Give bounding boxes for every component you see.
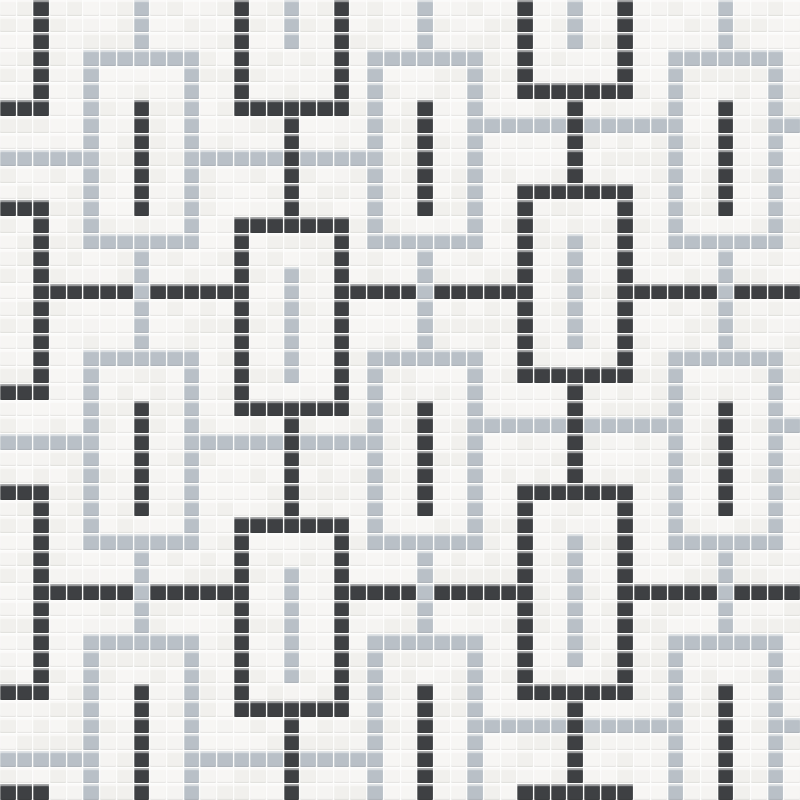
mosaic-tile	[0, 284, 16, 300]
mosaic-tile	[167, 534, 183, 550]
mosaic-tile	[684, 184, 700, 200]
mosaic-tile	[417, 184, 433, 200]
mosaic-tile	[467, 434, 483, 450]
mosaic-tile	[467, 334, 483, 350]
mosaic-tile	[451, 67, 467, 83]
mosaic-tile	[551, 567, 567, 583]
mosaic-tile	[367, 83, 383, 99]
mosaic-tile	[451, 267, 467, 283]
mosaic-tile	[567, 134, 583, 150]
mosaic-tile	[617, 617, 633, 633]
mosaic-tile	[634, 50, 650, 66]
mosaic-tile	[701, 83, 717, 99]
mosaic-tile	[718, 334, 734, 350]
mosaic-tile	[668, 284, 684, 300]
mosaic-tile	[417, 601, 433, 617]
mosaic-tile	[551, 768, 567, 784]
mosaic-tile	[17, 200, 33, 216]
mosaic-tile	[434, 517, 450, 533]
mosaic-tile	[234, 534, 250, 550]
mosaic-tile	[484, 17, 500, 33]
mosaic-tile	[167, 517, 183, 533]
mosaic-tile	[551, 367, 567, 383]
mosaic-tile	[617, 434, 633, 450]
mosaic-tile	[484, 517, 500, 533]
mosaic-tile	[718, 284, 734, 300]
mosaic-tile	[417, 617, 433, 633]
mosaic-tile	[50, 567, 66, 583]
mosaic-tile	[267, 234, 283, 250]
mosaic-tile	[734, 83, 750, 99]
mosaic-tile	[534, 734, 550, 750]
mosaic-tile	[284, 501, 300, 517]
mosaic-tile	[83, 751, 99, 767]
mosaic-tile	[434, 367, 450, 383]
mosaic-tile	[67, 50, 83, 66]
mosaic-tile	[300, 184, 316, 200]
mosaic-tile	[284, 317, 300, 333]
mosaic-tile	[217, 334, 233, 350]
mosaic-tile	[334, 551, 350, 567]
mosaic-tile	[751, 67, 767, 83]
mosaic-tile	[768, 367, 784, 383]
mosaic-tile	[150, 601, 166, 617]
mosaic-tile	[234, 234, 250, 250]
mosaic-tile	[150, 551, 166, 567]
mosaic-tile	[367, 33, 383, 49]
mosaic-tile	[784, 634, 800, 650]
mosaic-tile	[768, 634, 784, 650]
mosaic-tile	[751, 434, 767, 450]
mosaic-tile	[150, 617, 166, 633]
mosaic-tile	[451, 300, 467, 316]
mosaic-tile	[768, 117, 784, 133]
mosaic-tile	[17, 517, 33, 533]
mosaic-tile	[33, 534, 49, 550]
mosaic-tile	[484, 534, 500, 550]
mosaic-tile	[33, 451, 49, 467]
mosaic-tile	[617, 284, 633, 300]
mosaic-tile	[117, 300, 133, 316]
mosaic-tile	[401, 0, 417, 16]
mosaic-tile	[150, 367, 166, 383]
mosaic-tile	[250, 534, 266, 550]
mosaic-tile	[684, 601, 700, 617]
mosaic-tile	[484, 467, 500, 483]
mosaic-tile	[117, 167, 133, 183]
mosaic-tile	[50, 200, 66, 216]
mosaic-tile	[0, 768, 16, 784]
mosaic-tile	[551, 250, 567, 266]
mosaic-tile	[150, 718, 166, 734]
mosaic-tile	[634, 401, 650, 417]
mosaic-tile	[384, 83, 400, 99]
mosaic-tile	[784, 134, 800, 150]
mosaic-tile	[701, 367, 717, 383]
mosaic-tile	[601, 434, 617, 450]
mosaic-tile	[234, 634, 250, 650]
mosaic-tile	[284, 250, 300, 266]
mosaic-tile	[217, 434, 233, 450]
mosaic-tile	[217, 734, 233, 750]
mosaic-tile	[467, 484, 483, 500]
mosaic-tile	[300, 334, 316, 350]
mosaic-tile	[0, 684, 16, 700]
mosaic-tile	[634, 167, 650, 183]
mosaic-tile	[434, 501, 450, 517]
mosaic-tile	[784, 384, 800, 400]
mosaic-tile	[567, 651, 583, 667]
mosaic-tile	[50, 300, 66, 316]
mosaic-tile	[267, 634, 283, 650]
mosaic-tile	[50, 651, 66, 667]
mosaic-tile	[334, 434, 350, 450]
mosaic-tile	[567, 33, 583, 49]
mosaic-tile	[67, 184, 83, 200]
mosaic-tile	[668, 117, 684, 133]
mosaic-tile	[134, 718, 150, 734]
mosaic-tile	[300, 484, 316, 500]
mosaic-tile	[200, 718, 216, 734]
mosaic-tile	[367, 701, 383, 717]
mosaic-tile	[184, 517, 200, 533]
mosaic-tile	[701, 234, 717, 250]
mosaic-tile	[200, 417, 216, 433]
mosaic-tile	[417, 250, 433, 266]
mosaic-tile	[150, 67, 166, 83]
mosaic-tile	[50, 0, 66, 16]
mosaic-tile	[584, 200, 600, 216]
mosaic-tile	[100, 501, 116, 517]
mosaic-tile	[701, 534, 717, 550]
mosaic-tile	[67, 83, 83, 99]
mosaic-tile	[617, 651, 633, 667]
mosaic-tile	[50, 751, 66, 767]
mosaic-tile	[33, 117, 49, 133]
mosaic-tile	[701, 467, 717, 483]
mosaic-tile	[250, 134, 266, 150]
mosaic-tile	[284, 150, 300, 166]
mosaic-tile	[184, 200, 200, 216]
mosaic-tile	[234, 501, 250, 517]
mosaic-tile	[217, 217, 233, 233]
mosaic-tile	[751, 684, 767, 700]
mosaic-tile	[33, 784, 49, 800]
mosaic-tile	[150, 284, 166, 300]
mosaic-tile	[684, 317, 700, 333]
mosaic-tile	[401, 401, 417, 417]
mosaic-tile	[100, 451, 116, 467]
mosaic-tile	[250, 234, 266, 250]
mosaic-tile	[634, 434, 650, 450]
mosaic-tile	[434, 484, 450, 500]
mosaic-tile	[50, 83, 66, 99]
mosaic-tile	[651, 250, 667, 266]
mosaic-tile	[734, 567, 750, 583]
mosaic-tile	[33, 584, 49, 600]
mosaic-tile	[784, 617, 800, 633]
mosaic-tile	[284, 467, 300, 483]
mosaic-tile	[0, 784, 16, 800]
mosaic-tile	[134, 384, 150, 400]
mosaic-tile	[350, 50, 366, 66]
mosaic-tile	[100, 367, 116, 383]
mosaic-tile	[134, 701, 150, 717]
mosaic-tile	[467, 200, 483, 216]
mosaic-tile	[234, 751, 250, 767]
mosaic-tile	[334, 300, 350, 316]
mosaic-tile	[501, 267, 517, 283]
mosaic-tile	[434, 83, 450, 99]
mosaic-tile	[267, 50, 283, 66]
mosaic-tile	[83, 50, 99, 66]
mosaic-tile	[784, 601, 800, 617]
mosaic-tile	[451, 350, 467, 366]
mosaic-tile	[33, 601, 49, 617]
mosaic-tile	[634, 200, 650, 216]
mosaic-tile	[334, 184, 350, 200]
mosaic-tile	[434, 217, 450, 233]
mosaic-tile	[50, 67, 66, 83]
mosaic-tile	[684, 551, 700, 567]
mosaic-tile	[668, 334, 684, 350]
mosaic-tile	[584, 284, 600, 300]
mosaic-tile	[117, 484, 133, 500]
mosaic-tile	[367, 217, 383, 233]
mosaic-tile	[718, 651, 734, 667]
mosaic-tile	[617, 501, 633, 517]
mosaic-tile	[517, 734, 533, 750]
mosaic-tile	[784, 551, 800, 567]
mosaic-tile	[234, 768, 250, 784]
mosaic-tile	[300, 83, 316, 99]
mosaic-tile	[768, 484, 784, 500]
mosaic-tile	[768, 334, 784, 350]
mosaic-tile	[284, 200, 300, 216]
mosaic-tile	[584, 751, 600, 767]
mosaic-tile	[350, 200, 366, 216]
mosaic-tile	[350, 401, 366, 417]
mosaic-tile	[117, 0, 133, 16]
mosaic-tile	[751, 634, 767, 650]
mosaic-tile	[601, 284, 617, 300]
mosaic-tile	[250, 684, 266, 700]
mosaic-tile	[33, 267, 49, 283]
mosaic-tile	[517, 67, 533, 83]
mosaic-tile	[284, 67, 300, 83]
mosaic-tile	[200, 67, 216, 83]
mosaic-tile	[200, 217, 216, 233]
mosaic-tile	[200, 134, 216, 150]
mosaic-tile	[367, 417, 383, 433]
mosaic-tile	[184, 601, 200, 617]
mosaic-tile	[601, 317, 617, 333]
mosaic-tile	[334, 83, 350, 99]
mosaic-tile	[83, 334, 99, 350]
mosaic-tile	[150, 384, 166, 400]
mosaic-tile	[768, 768, 784, 784]
mosaic-tile	[250, 67, 266, 83]
mosaic-tile	[250, 83, 266, 99]
mosaic-tile	[100, 100, 116, 116]
mosaic-tile	[634, 584, 650, 600]
mosaic-tile	[267, 684, 283, 700]
mosaic-tile	[167, 601, 183, 617]
mosaic-tile	[534, 567, 550, 583]
mosaic-tile	[100, 668, 116, 684]
mosaic-tile	[634, 751, 650, 767]
mosaic-tile	[250, 317, 266, 333]
mosaic-tile	[134, 150, 150, 166]
mosaic-tile	[668, 384, 684, 400]
mosaic-tile	[50, 701, 66, 717]
mosaic-tile	[334, 567, 350, 583]
mosaic-tile	[434, 350, 450, 366]
mosaic-tile	[534, 467, 550, 483]
mosaic-tile	[701, 317, 717, 333]
mosaic-tile	[67, 317, 83, 333]
mosaic-tile	[117, 134, 133, 150]
mosaic-tile	[83, 617, 99, 633]
mosaic-tile	[300, 501, 316, 517]
mosaic-tile	[200, 184, 216, 200]
mosaic-tile	[134, 317, 150, 333]
mosaic-tile	[434, 734, 450, 750]
mosaic-tile	[300, 517, 316, 533]
mosaic-tile	[617, 33, 633, 49]
mosaic-tile	[534, 33, 550, 49]
mosaic-tile	[317, 134, 333, 150]
mosaic-tile	[200, 284, 216, 300]
mosaic-tile	[517, 17, 533, 33]
mosaic-tile	[501, 83, 517, 99]
mosaic-tile	[401, 284, 417, 300]
mosaic-tile	[584, 167, 600, 183]
mosaic-tile	[0, 617, 16, 633]
mosaic-tile	[584, 734, 600, 750]
mosaic-tile	[768, 267, 784, 283]
mosaic-tile	[83, 117, 99, 133]
mosaic-tile	[701, 33, 717, 49]
mosaic-tile	[67, 451, 83, 467]
mosaic-tile	[784, 751, 800, 767]
mosaic-tile	[617, 384, 633, 400]
mosaic-tile	[401, 768, 417, 784]
mosaic-tile	[551, 484, 567, 500]
mosaic-tile	[734, 751, 750, 767]
mosaic-tile	[367, 100, 383, 116]
mosaic-tile	[0, 601, 16, 617]
mosaic-tile	[784, 517, 800, 533]
mosaic-tile	[83, 167, 99, 183]
mosaic-tile	[451, 184, 467, 200]
mosaic-tile	[701, 434, 717, 450]
mosaic-tile	[617, 517, 633, 533]
mosaic-tile	[100, 200, 116, 216]
mosaic-tile	[634, 300, 650, 316]
mosaic-tile	[200, 601, 216, 617]
mosaic-tile	[551, 684, 567, 700]
mosaic-tile	[234, 584, 250, 600]
mosaic-tile	[184, 684, 200, 700]
mosaic-tile	[668, 0, 684, 16]
mosaic-tile	[584, 451, 600, 467]
mosaic-tile	[768, 167, 784, 183]
mosaic-tile	[350, 67, 366, 83]
mosaic-tile	[751, 267, 767, 283]
mosaic-tile	[317, 150, 333, 166]
mosaic-tile	[434, 334, 450, 350]
mosaic-tile	[67, 534, 83, 550]
mosaic-tile	[67, 567, 83, 583]
mosaic-tile	[501, 718, 517, 734]
mosaic-tile	[434, 384, 450, 400]
mosaic-tile	[317, 167, 333, 183]
mosaic-tile	[551, 617, 567, 633]
mosaic-tile	[33, 150, 49, 166]
mosaic-tile	[401, 501, 417, 517]
mosaic-tile	[467, 751, 483, 767]
mosaic-tile	[751, 651, 767, 667]
mosaic-tile	[434, 267, 450, 283]
mosaic-tile	[784, 284, 800, 300]
mosaic-tile	[501, 501, 517, 517]
mosaic-tile	[284, 134, 300, 150]
mosaic-tile	[768, 584, 784, 600]
mosaic-tile	[517, 484, 533, 500]
mosaic-tile	[434, 117, 450, 133]
mosaic-tile	[617, 250, 633, 266]
mosaic-tile	[617, 734, 633, 750]
mosaic-tile	[67, 134, 83, 150]
mosaic-tile	[367, 350, 383, 366]
mosaic-tile	[200, 467, 216, 483]
mosaic-tile	[534, 184, 550, 200]
mosaic-tile	[83, 784, 99, 800]
mosaic-tile	[33, 384, 49, 400]
mosaic-tile	[50, 117, 66, 133]
mosaic-tile	[250, 701, 266, 717]
mosaic-tile	[401, 33, 417, 49]
mosaic-tile	[184, 417, 200, 433]
mosaic-tile	[451, 33, 467, 49]
mosaic-tile	[501, 567, 517, 583]
mosaic-tile	[334, 234, 350, 250]
mosaic-tile	[50, 267, 66, 283]
mosaic-tile	[684, 117, 700, 133]
mosaic-tile	[67, 684, 83, 700]
mosaic-tile	[234, 167, 250, 183]
mosaic-tile	[350, 367, 366, 383]
mosaic-tile	[467, 701, 483, 717]
mosaic-tile	[684, 501, 700, 517]
mosaic-tile	[484, 634, 500, 650]
mosaic-tile	[167, 117, 183, 133]
mosaic-tile	[451, 250, 467, 266]
mosaic-tile	[83, 668, 99, 684]
mosaic-tile	[751, 50, 767, 66]
mosaic-tile	[668, 300, 684, 316]
mosaic-tile	[200, 150, 216, 166]
mosaic-tile	[334, 0, 350, 16]
mosaic-tile	[551, 17, 567, 33]
mosaic-tile	[534, 167, 550, 183]
mosaic-tile	[250, 184, 266, 200]
mosaic-tile	[250, 467, 266, 483]
mosaic-tile	[617, 567, 633, 583]
mosaic-tile	[67, 484, 83, 500]
mosaic-tile	[451, 234, 467, 250]
